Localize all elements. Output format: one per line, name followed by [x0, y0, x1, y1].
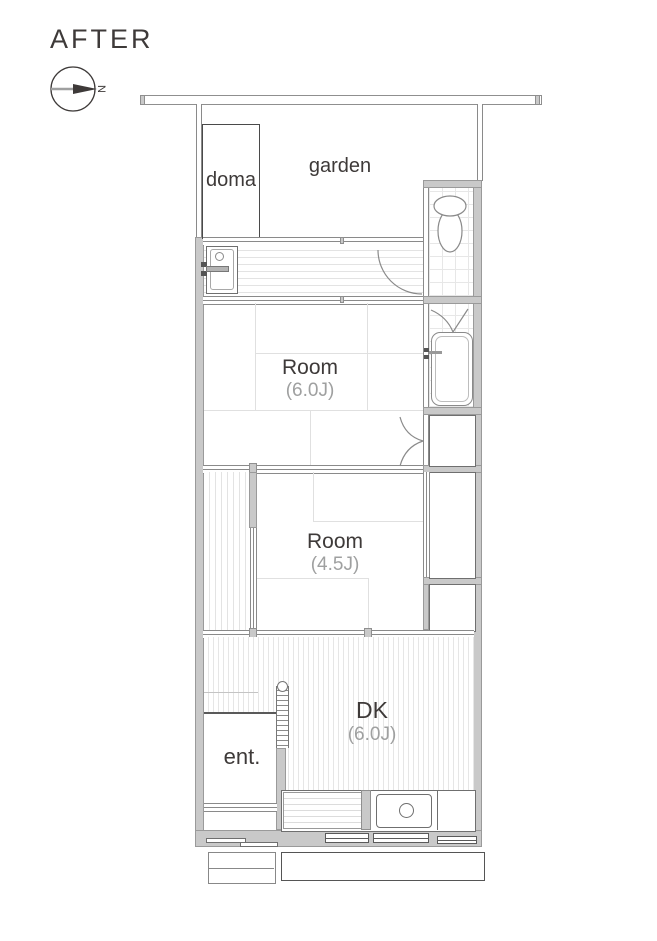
door-arc-storage-top	[400, 417, 423, 441]
entrance-label: ent.	[204, 744, 280, 770]
tatami-line	[204, 410, 423, 411]
page-title: AFTER	[50, 24, 154, 55]
fence-cap-left	[140, 95, 145, 105]
counter-line	[437, 790, 438, 830]
engawa-wall-post	[249, 472, 257, 528]
kitchen-divider	[361, 790, 371, 830]
window-bottom-mid	[373, 833, 429, 843]
tatami-line	[310, 410, 311, 465]
toilet-left-wall	[423, 188, 429, 296]
tatami-line	[313, 521, 423, 522]
wall-toilet-bath	[423, 296, 482, 304]
room45-label: Room (4.5J)	[255, 530, 415, 575]
entrance-inner-sliding-door	[204, 803, 277, 812]
compass-north-label: N	[95, 85, 107, 93]
fence-cap-right	[535, 95, 540, 105]
tatami-line	[313, 472, 314, 521]
toilet-floor	[429, 188, 473, 296]
tatami-line	[255, 353, 423, 354]
dk-name: DK	[292, 698, 452, 724]
closet-lower	[429, 584, 476, 632]
doma-label: doma	[202, 169, 260, 192]
tatami-line	[257, 578, 368, 579]
porch-step	[281, 852, 485, 881]
room6-name: Room	[230, 356, 390, 380]
dk-label: DK (6.0J)	[292, 698, 452, 745]
entrance-step-line	[208, 868, 274, 869]
closet-upper	[429, 472, 476, 579]
garden-label: garden	[285, 155, 395, 178]
ladder-icon	[276, 686, 289, 748]
entrance-top-wall	[204, 712, 282, 714]
bath-faucet	[424, 355, 429, 359]
floor-line	[204, 692, 258, 693]
storage-room	[429, 415, 476, 467]
tatami-line	[368, 578, 369, 630]
window-bottom-left	[325, 833, 369, 843]
sliding-track-corridor-bottom	[203, 296, 423, 305]
washbasin-drain	[215, 252, 224, 261]
wall-bath-bottom	[423, 407, 482, 415]
closet-lower-post	[423, 584, 429, 630]
room45-name: Room	[255, 530, 415, 554]
engawa-floor	[204, 472, 250, 637]
track-post	[340, 237, 344, 244]
track-post	[340, 296, 344, 303]
site-boundary-right	[477, 104, 483, 181]
faucet-spout	[206, 266, 229, 272]
room45-size: (4.5J)	[255, 554, 415, 575]
compass-icon: N	[46, 62, 112, 118]
floor-plan-page: AFTER N garden doma	[0, 0, 657, 941]
storage-left-wall	[423, 415, 429, 465]
dk-size: (6.0J)	[292, 724, 452, 745]
bathtub-inner	[435, 336, 469, 402]
room6-size: (6.0J)	[230, 380, 390, 401]
ladder-top-knob	[277, 681, 288, 692]
entrance-room	[204, 713, 281, 830]
wall-toilet-top	[423, 180, 482, 188]
closet-sliding-front	[423, 472, 430, 577]
wall-left	[195, 237, 204, 847]
room6-label: Room (6.0J)	[230, 356, 390, 401]
door-arc-storage-bottom	[400, 441, 423, 466]
window-bottom-right	[437, 836, 477, 844]
kitchen-sink-drain	[399, 803, 414, 818]
bath-spout	[429, 351, 442, 354]
entrance-door-leaf	[240, 842, 278, 847]
kitchen-drainboard	[283, 792, 363, 829]
